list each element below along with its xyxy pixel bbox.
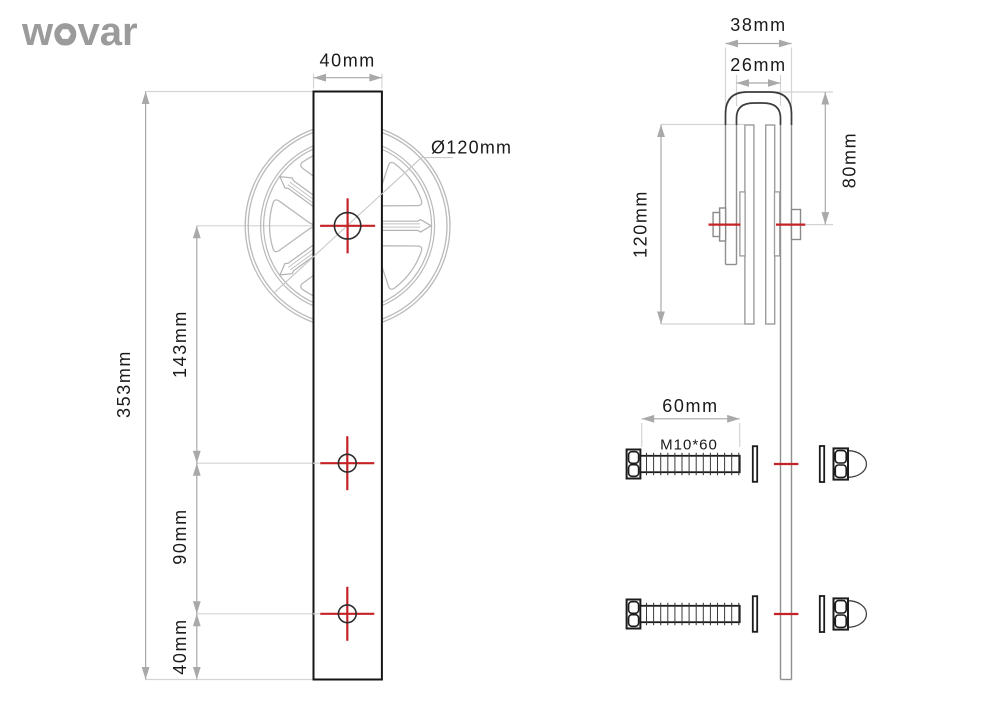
svg-text:26mm: 26mm	[730, 55, 786, 75]
svg-text:80mm: 80mm	[840, 132, 860, 188]
svg-text:40mm: 40mm	[170, 618, 190, 674]
svg-text:120mm: 120mm	[631, 190, 651, 258]
svg-text:90mm: 90mm	[170, 508, 190, 564]
svg-text:wovar: wovar	[21, 10, 138, 54]
svg-text:38mm: 38mm	[730, 15, 786, 35]
svg-text:M10*60: M10*60	[660, 437, 718, 454]
svg-text:40mm: 40mm	[319, 51, 375, 71]
svg-text:60mm: 60mm	[662, 396, 718, 416]
svg-text:353mm: 353mm	[114, 350, 134, 418]
svg-text:143mm: 143mm	[170, 310, 190, 378]
svg-text:Ø120mm: Ø120mm	[431, 138, 512, 158]
